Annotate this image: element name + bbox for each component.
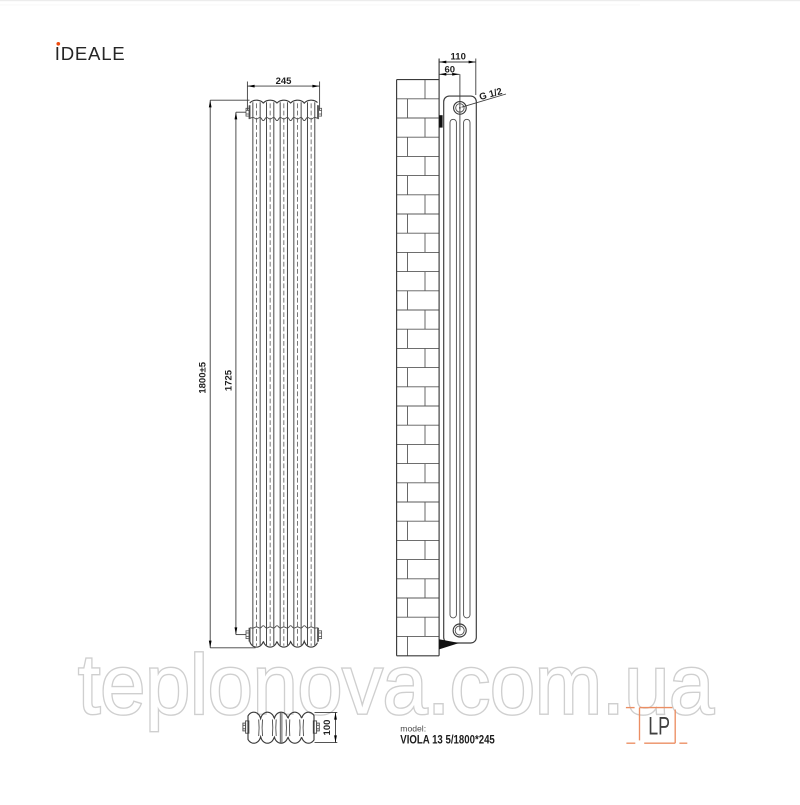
- svg-text:1800±5: 1800±5: [197, 361, 208, 393]
- svg-text:100: 100: [322, 720, 333, 736]
- svg-text:60: 60: [445, 64, 456, 75]
- svg-text:110: 110: [451, 51, 466, 62]
- svg-text:1725: 1725: [223, 369, 234, 391]
- svg-text:VIOLA 13 5/1800*245: VIOLA 13 5/1800*245: [400, 733, 495, 746]
- svg-text:245: 245: [276, 76, 293, 87]
- svg-text:LP: LP: [648, 713, 670, 741]
- svg-text:model:: model:: [400, 724, 426, 734]
- svg-text:IDEALE: IDEALE: [55, 43, 126, 64]
